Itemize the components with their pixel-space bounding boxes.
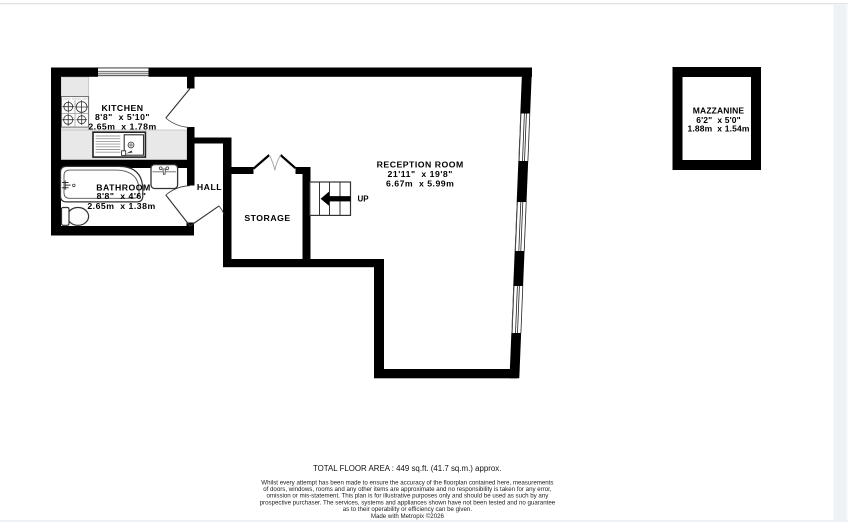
svg-text:UP: UP bbox=[357, 194, 369, 203]
svg-text:MAZZANINE: MAZZANINE bbox=[693, 106, 745, 116]
svg-text:2.65m x 1.38m: 2.65m x 1.38m bbox=[87, 201, 155, 211]
svg-text:HALL: HALL bbox=[197, 182, 222, 192]
svg-text:1.88m x 1.54m: 1.88m x 1.54m bbox=[687, 124, 749, 134]
svg-text:TOTAL FLOOR AREA : 449 sq.ft.: TOTAL FLOOR AREA : 449 sq.ft. (41.7 sq.m… bbox=[313, 464, 501, 473]
svg-text:2.65m x 1.78m: 2.65m x 1.78m bbox=[88, 122, 156, 132]
svg-text:Made with Metropix ©2026: Made with Metropix ©2026 bbox=[371, 513, 445, 520]
svg-text:8'8" x 5'10": 8'8" x 5'10" bbox=[95, 112, 150, 122]
svg-text:6.67m x 5.99m: 6.67m x 5.99m bbox=[386, 178, 454, 188]
svg-text:STORAGE: STORAGE bbox=[244, 213, 290, 223]
svg-text:8'8" x 4'6": 8'8" x 4'6" bbox=[97, 191, 147, 201]
